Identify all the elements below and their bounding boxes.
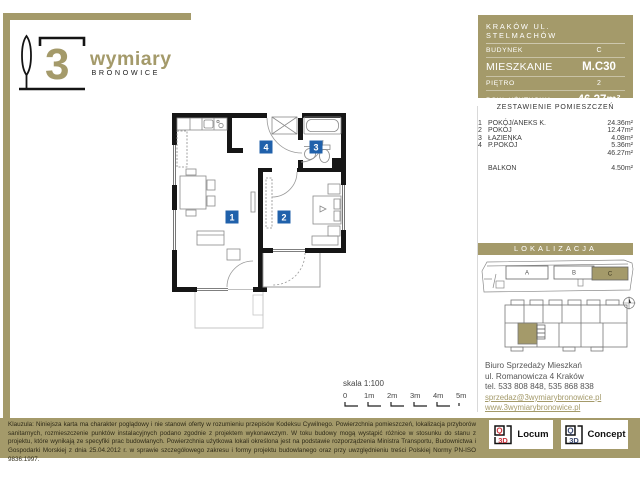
tv-cabinet (251, 192, 255, 212)
balcony (263, 253, 320, 287)
room-no: 2 (478, 127, 488, 134)
q3d-concept-logo: Q 3D Concept (561, 420, 628, 449)
balcony-label: BALKON (488, 165, 611, 172)
scale-bar: skala 1:100 0 1m 2m 3m 4m 5m (335, 376, 475, 412)
building-plan (493, 296, 638, 360)
room-marker-2-label: 2 (281, 212, 286, 222)
apartment-label: MIESZKANIE (486, 61, 553, 73)
compass-icon (623, 297, 636, 310)
room-area: 4.08m² (611, 135, 633, 142)
building-c-label: C (608, 272, 613, 278)
room-name: ŁAZIENKA (488, 135, 611, 142)
shaft (332, 158, 341, 168)
sales-office-contact: Biuro Sprzedaży Mieszkań ul. Romanowicza… (485, 361, 635, 414)
room-marker-1-label: 1 (229, 212, 234, 222)
balcony-area: 4.50m² (611, 165, 633, 172)
svg-text:0: 0 (343, 391, 347, 400)
room-name: P.POKÓJ (488, 142, 611, 149)
balcony-row: BALKON 4.50m² (478, 165, 633, 172)
room-list-title: ZESTAWIENIE POMIESZCZEŃ (478, 104, 633, 111)
area-label: POW. UŻYTKOWA (486, 97, 552, 104)
svg-text:5m: 5m (456, 391, 466, 400)
scale-label: skala 1:100 (343, 379, 384, 388)
room-row: 3 ŁAZIENKA 4.08m² (478, 135, 633, 142)
room-row: 4 P.POKÓJ 5.36m² (478, 142, 633, 149)
frame-left-bar (3, 13, 10, 418)
svg-text:2m: 2m (387, 391, 397, 400)
svg-text:Q: Q (497, 426, 503, 435)
building-b-label: B (572, 271, 576, 277)
floor-plan: 1 2 3 4 (150, 100, 396, 350)
svg-text:Q: Q (567, 426, 573, 435)
svg-text:1m: 1m (364, 391, 374, 400)
header-row-apartment: MIESZKANIE M.C30 (486, 58, 625, 77)
room-no: 3 (478, 135, 488, 142)
contact-website-link[interactable]: www.3wymiarybronowice.pl (485, 403, 580, 413)
contact-line-2: ul. Romanowicza 4 Kraków (485, 372, 635, 383)
q3d-mark-icon: Q 3D (493, 424, 513, 446)
sofa (197, 231, 224, 245)
svg-text:4m: 4m (433, 391, 443, 400)
svg-text:3m: 3m (410, 391, 420, 400)
floor-value: 2 (573, 80, 625, 87)
logo-number: 3 (45, 40, 69, 89)
dining-table (180, 176, 206, 209)
location-section-title: LOKALIZACJA (478, 243, 633, 255)
frame-top-bar (3, 13, 191, 20)
kitchen-sink (204, 120, 213, 128)
brand-logo: 3 wymiary BRONOWICE (16, 28, 226, 98)
logo-subtitle: BRONOWICE (92, 68, 161, 77)
room-row: 2 POKÓJ 12.47m² (478, 127, 633, 134)
contact-line-3: tel. 533 808 848, 535 868 838 (485, 382, 635, 393)
svg-text:3D: 3D (569, 436, 579, 445)
q3d-concept-label: Concept (588, 429, 626, 440)
svg-text:3D: 3D (499, 436, 509, 445)
total-area: 46.27m² (607, 150, 633, 157)
building-value: C (573, 47, 625, 54)
building-label: BUDYNEK (486, 47, 523, 54)
room-list: ZESTAWIENIE POMIESZCZEŃ 1 POKÓJ/ANEKS K.… (478, 104, 633, 172)
building-a-label: A (525, 271, 529, 277)
room-marker-4-label: 4 (263, 142, 268, 152)
header-row-floor: PIĘTRO 2 (486, 77, 625, 91)
room-name: POKÓJ (488, 127, 607, 134)
room-no: 1 (478, 120, 488, 127)
q3d-locum-label: Locum (517, 429, 548, 440)
apartment-header: KRAKÓW UL. STELMACHÓW BUDYNEK C MIESZKAN… (478, 15, 633, 98)
room-marker-3-label: 3 (313, 142, 318, 152)
contact-email-link[interactable]: sprzedaz@3wymiarybronowice.pl (485, 393, 601, 403)
room-area: 5.36m² (611, 142, 633, 149)
doors (227, 118, 323, 287)
header-location: KRAKÓW UL. STELMACHÓW (486, 19, 625, 44)
site-plan: A B C (478, 257, 635, 299)
logo-name: wymiary (89, 48, 172, 70)
header-row-building: BUDYNEK C (486, 44, 625, 58)
room-total-row: 46.27m² (478, 150, 633, 157)
highlighted-unit (518, 323, 537, 344)
q3d-mark-icon: Q 3D (564, 424, 584, 446)
legal-disclaimer: Klauzula: Niniejsza karta ma charakter p… (8, 421, 476, 465)
scale-ticks: 0 1m 2m 3m 4m 5m (343, 391, 466, 400)
room-area: 24.36m² (607, 120, 633, 127)
room-no: 4 (478, 142, 488, 149)
apartment-card-page: 3 wymiary BRONOWICE (0, 0, 640, 480)
q3d-locum-logo: Q 3D Locum (489, 420, 553, 449)
room-area: 12.47m² (607, 127, 633, 134)
floor-label: PIĘTRO (486, 80, 515, 87)
contact-line-1: Biuro Sprzedaży Mieszkań (485, 361, 635, 372)
apartment-number: M.C30 (573, 61, 625, 73)
bed (313, 196, 341, 224)
